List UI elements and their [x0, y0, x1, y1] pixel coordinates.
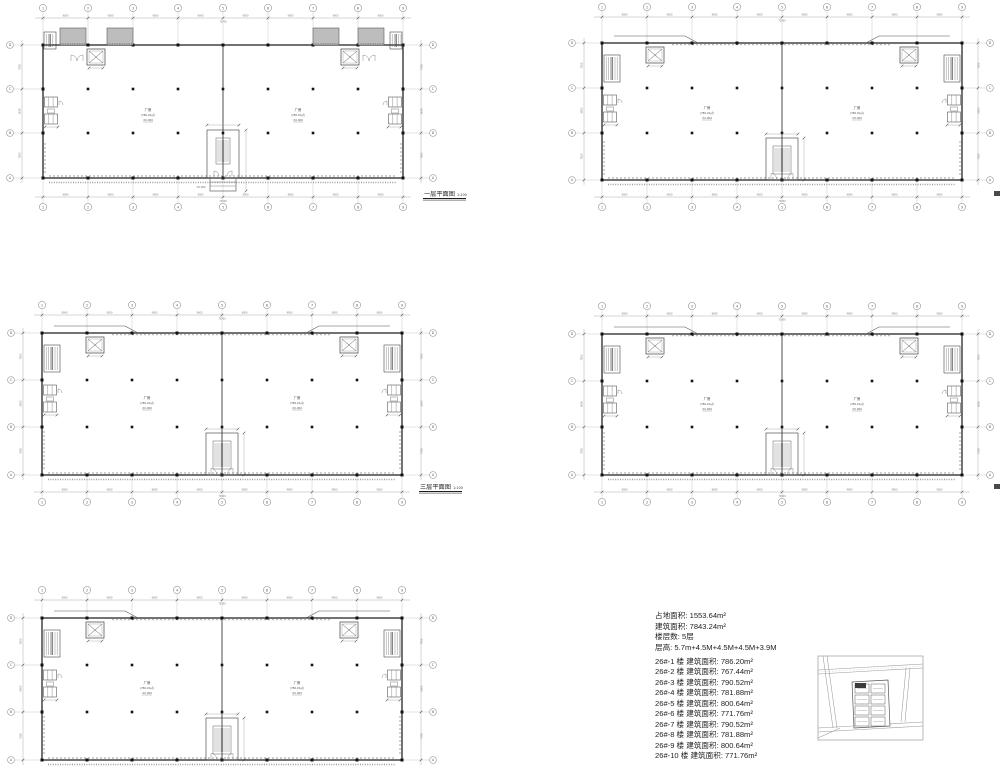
- svg-text:5: 5: [781, 5, 783, 9]
- svg-text:9000: 9000: [152, 597, 158, 600]
- svg-text:1:100: 1:100: [457, 193, 467, 197]
- svg-text:5: 5: [221, 588, 223, 592]
- svg-text:9: 9: [961, 205, 963, 209]
- svg-text:8: 8: [357, 6, 359, 10]
- svg-text:C: C: [989, 379, 991, 383]
- svg-text:72000: 72000: [778, 200, 786, 203]
- svg-text:9000: 9000: [332, 489, 338, 492]
- svg-text:9000: 9000: [847, 194, 853, 197]
- svg-text:9000: 9000: [243, 194, 249, 197]
- svg-text:9000: 9000: [802, 313, 808, 316]
- svg-text:7500: 7500: [978, 354, 981, 360]
- svg-text:B: B: [571, 131, 573, 135]
- svg-text:9000: 9000: [197, 597, 203, 600]
- svg-text:6000: 6000: [19, 400, 22, 406]
- svg-text:9000: 9000: [892, 194, 898, 197]
- svg-text:9000: 9000: [847, 313, 853, 316]
- svg-text:B: B: [432, 710, 434, 714]
- svg-text:9000: 9000: [287, 489, 293, 492]
- svg-text:C: C: [432, 378, 434, 382]
- svg-text:5: 5: [222, 6, 224, 10]
- svg-text:2: 2: [86, 588, 88, 592]
- svg-text:7: 7: [312, 6, 314, 10]
- plan-floor-2: 1900029000390004900059000690007900089000…: [569, 3, 1000, 210]
- svg-text:1: 1: [41, 303, 43, 307]
- svg-text:8: 8: [916, 205, 918, 209]
- svg-text:9000: 9000: [198, 194, 204, 197]
- svg-text:9000: 9000: [242, 312, 248, 315]
- svg-text:6: 6: [266, 588, 268, 592]
- svg-text:72000: 72000: [219, 21, 227, 24]
- svg-text:9000: 9000: [288, 194, 294, 197]
- svg-text:6: 6: [267, 6, 269, 10]
- svg-text:72000: 72000: [218, 318, 226, 321]
- svg-text:4: 4: [736, 500, 738, 504]
- svg-text:9000: 9000: [937, 14, 943, 17]
- svg-text:9000: 9000: [622, 194, 628, 197]
- svg-text:6: 6: [826, 5, 828, 9]
- svg-text:7500: 7500: [421, 638, 424, 644]
- svg-text:(786.20㎡): (786.20㎡): [700, 402, 714, 406]
- svg-text:8: 8: [357, 205, 359, 209]
- svg-text:厂房: 厂房: [854, 105, 861, 110]
- svg-text:9000: 9000: [847, 489, 853, 492]
- svg-text:C: C: [989, 86, 991, 90]
- svg-text:9000: 9000: [667, 194, 673, 197]
- svg-text:9000: 9000: [107, 312, 113, 315]
- stat-site-area: 占地面积: 1553.64m²: [655, 611, 777, 622]
- svg-text:5: 5: [781, 205, 783, 209]
- svg-text:(786.20㎡): (786.20㎡): [140, 401, 154, 405]
- svg-text:1: 1: [601, 500, 603, 504]
- svg-text:7500: 7500: [580, 153, 583, 159]
- svg-text:厂房: 厂房: [704, 396, 711, 401]
- svg-text:4: 4: [176, 303, 178, 307]
- svg-text:9000: 9000: [198, 15, 204, 18]
- svg-text:9000: 9000: [622, 14, 628, 17]
- svg-text:(786.20㎡): (786.20㎡): [290, 686, 304, 690]
- svg-text:72000: 72000: [778, 20, 786, 23]
- svg-text:8: 8: [356, 500, 358, 504]
- svg-text:9000: 9000: [107, 489, 113, 492]
- svg-text:4: 4: [177, 205, 179, 209]
- svg-text:(786.20㎡): (786.20㎡): [700, 111, 714, 115]
- svg-text:7: 7: [312, 205, 314, 209]
- svg-text:9000: 9000: [152, 312, 158, 315]
- svg-text:9000: 9000: [847, 14, 853, 17]
- svg-text:9000: 9000: [937, 194, 943, 197]
- svg-text:9000: 9000: [288, 15, 294, 18]
- svg-text:2: 2: [86, 500, 88, 504]
- svg-text:9: 9: [402, 205, 404, 209]
- svg-text:7500: 7500: [580, 448, 583, 454]
- svg-text:7: 7: [311, 303, 313, 307]
- svg-text:9000: 9000: [242, 597, 248, 600]
- plan-floor-3: 1900029000390004900059000690007900089000…: [8, 301, 463, 505]
- svg-text:一层平面图: 一层平面图: [424, 191, 455, 198]
- svg-text:9000: 9000: [332, 312, 338, 315]
- svg-text:7500: 7500: [580, 62, 583, 68]
- svg-text:6: 6: [826, 304, 828, 308]
- plan-floor-1: 1900029000390004900059000690007900089000…: [7, 4, 467, 210]
- svg-text:9000: 9000: [377, 489, 383, 492]
- svg-text:7500: 7500: [19, 353, 22, 359]
- svg-text:B: B: [432, 131, 434, 135]
- svg-text:6000: 6000: [580, 107, 583, 113]
- svg-text:7500: 7500: [19, 448, 22, 454]
- svg-text:2: 2: [646, 5, 648, 9]
- svg-text:1: 1: [41, 588, 43, 592]
- svg-text:6000: 6000: [19, 685, 22, 691]
- floor-plans-drawing: 1900029000390004900059000690007900089000…: [0, 0, 1000, 772]
- svg-text:1: 1: [601, 5, 603, 9]
- svg-text:B: B: [10, 710, 12, 714]
- svg-text:(786.20㎡): (786.20㎡): [291, 113, 305, 117]
- svg-text:6: 6: [826, 500, 828, 504]
- svg-text:B: B: [571, 425, 573, 429]
- svg-text:2: 2: [646, 500, 648, 504]
- svg-text:6: 6: [266, 500, 268, 504]
- svg-text:3: 3: [691, 304, 693, 308]
- svg-text:2: 2: [87, 205, 89, 209]
- plan-floor-5: 1900029000390004900059000690007900089000…: [8, 586, 437, 765]
- svg-text:9000: 9000: [243, 15, 249, 18]
- svg-text:4: 4: [177, 6, 179, 10]
- svg-text:9000: 9000: [153, 15, 159, 18]
- svg-text:9000: 9000: [153, 194, 159, 197]
- svg-text:7500: 7500: [18, 152, 21, 158]
- svg-text:(786.20㎡): (786.20㎡): [850, 402, 864, 406]
- svg-text:9: 9: [961, 500, 963, 504]
- svg-text:7: 7: [311, 500, 313, 504]
- svg-text:8: 8: [916, 500, 918, 504]
- svg-text:5: 5: [781, 304, 783, 308]
- svg-text:B: B: [989, 131, 991, 135]
- svg-text:3: 3: [131, 588, 133, 592]
- svg-text:72000: 72000: [778, 495, 786, 498]
- svg-text:±0.000: ±0.000: [196, 185, 206, 189]
- svg-text:6000: 6000: [421, 400, 424, 406]
- key-map: [818, 656, 923, 740]
- svg-text:(786.20㎡): (786.20㎡): [140, 686, 154, 690]
- unit-area-list: 26#-1 楼 建筑面积: 786.20m²26#-2 楼 建筑面积: 767.…: [655, 657, 777, 762]
- svg-text:1: 1: [41, 500, 43, 504]
- svg-text:1:100: 1:100: [453, 486, 463, 490]
- svg-text:厂房: 厂房: [295, 107, 302, 112]
- svg-text:9000: 9000: [802, 489, 808, 492]
- svg-text:3: 3: [691, 5, 693, 9]
- svg-text:±0.000: ±0.000: [142, 691, 152, 695]
- svg-text:9000: 9000: [622, 489, 628, 492]
- svg-text:三层平面图: 三层平面图: [420, 484, 451, 491]
- svg-text:7500: 7500: [421, 64, 424, 70]
- svg-text:7500: 7500: [421, 448, 424, 454]
- svg-text:6: 6: [267, 205, 269, 209]
- svg-text:7500: 7500: [978, 153, 981, 159]
- svg-text:5: 5: [221, 303, 223, 307]
- svg-text:9000: 9000: [197, 489, 203, 492]
- svg-text:7: 7: [871, 205, 873, 209]
- svg-text:9000: 9000: [892, 14, 898, 17]
- svg-text:±0.000: ±0.000: [142, 406, 152, 410]
- svg-text:1: 1: [601, 205, 603, 209]
- svg-text:9: 9: [402, 6, 404, 10]
- svg-text:±0.000: ±0.000: [143, 118, 153, 122]
- svg-text:9: 9: [401, 588, 403, 592]
- svg-text:9: 9: [961, 5, 963, 9]
- stat-floor-count: 楼层数: 5层: [655, 632, 777, 643]
- svg-text:厂房: 厂房: [145, 107, 152, 112]
- svg-text:±0.000: ±0.000: [292, 691, 302, 695]
- svg-text:2: 2: [646, 304, 648, 308]
- svg-text:9000: 9000: [332, 597, 338, 600]
- svg-text:9000: 9000: [378, 194, 384, 197]
- svg-text:72000: 72000: [219, 200, 227, 203]
- svg-text:±0.000: ±0.000: [702, 407, 712, 411]
- svg-text:5: 5: [222, 205, 224, 209]
- svg-text:厂房: 厂房: [294, 680, 301, 685]
- svg-text:9: 9: [961, 304, 963, 308]
- svg-text:9000: 9000: [892, 489, 898, 492]
- svg-text:厂房: 厂房: [704, 105, 711, 110]
- svg-text:7500: 7500: [421, 152, 424, 158]
- svg-text:B: B: [989, 425, 991, 429]
- svg-text:7: 7: [311, 588, 313, 592]
- svg-text:9000: 9000: [242, 489, 248, 492]
- svg-text:6: 6: [266, 303, 268, 307]
- svg-text:C: C: [10, 378, 12, 382]
- svg-text:B: B: [432, 425, 434, 429]
- svg-text:C: C: [9, 87, 11, 91]
- svg-text:C: C: [571, 86, 573, 90]
- svg-text:9000: 9000: [62, 597, 68, 600]
- unit-area-line: 26#-1 楼 建筑面积: 786.20m²: [655, 657, 777, 667]
- svg-text:9000: 9000: [802, 194, 808, 197]
- svg-text:7500: 7500: [421, 733, 424, 739]
- svg-text:5: 5: [221, 500, 223, 504]
- svg-text:±0.000: ±0.000: [293, 118, 303, 122]
- svg-text:3: 3: [132, 205, 134, 209]
- svg-text:B: B: [9, 131, 11, 135]
- svg-text:6000: 6000: [978, 401, 981, 407]
- svg-text:72000: 72000: [778, 319, 786, 322]
- svg-text:厂房: 厂房: [294, 395, 301, 400]
- svg-text:9000: 9000: [62, 312, 68, 315]
- svg-text:9000: 9000: [757, 313, 763, 316]
- svg-text:7: 7: [871, 500, 873, 504]
- svg-text:8: 8: [356, 303, 358, 307]
- svg-text:4: 4: [736, 5, 738, 9]
- svg-text:6: 6: [826, 205, 828, 209]
- svg-text:9000: 9000: [287, 597, 293, 600]
- svg-text:7: 7: [871, 304, 873, 308]
- svg-text:C: C: [432, 87, 434, 91]
- svg-text:4: 4: [176, 588, 178, 592]
- svg-text:厂房: 厂房: [854, 396, 861, 401]
- svg-text:3: 3: [131, 303, 133, 307]
- svg-text:3: 3: [691, 205, 693, 209]
- svg-text:C: C: [432, 663, 434, 667]
- svg-text:9: 9: [401, 303, 403, 307]
- svg-text:2: 2: [87, 6, 89, 10]
- stat-gross-area: 建筑面积: 7843.24m²: [655, 622, 777, 633]
- svg-text:9: 9: [401, 500, 403, 504]
- svg-text:5: 5: [781, 500, 783, 504]
- svg-text:±0.000: ±0.000: [702, 116, 712, 120]
- svg-text:7500: 7500: [978, 62, 981, 68]
- svg-text:8: 8: [916, 304, 918, 308]
- svg-text:72000: 72000: [218, 603, 226, 606]
- svg-text:9000: 9000: [622, 313, 628, 316]
- svg-text:9000: 9000: [757, 489, 763, 492]
- svg-text:1: 1: [42, 6, 44, 10]
- svg-text:6000: 6000: [580, 401, 583, 407]
- svg-text:4: 4: [736, 304, 738, 308]
- svg-text:9000: 9000: [937, 313, 943, 316]
- svg-text:6000: 6000: [421, 108, 424, 114]
- svg-text:9000: 9000: [108, 194, 114, 197]
- svg-text:9000: 9000: [108, 15, 114, 18]
- svg-text:9000: 9000: [757, 14, 763, 17]
- svg-text:9000: 9000: [937, 489, 943, 492]
- svg-text:9000: 9000: [667, 14, 673, 17]
- svg-text:72000: 72000: [218, 495, 226, 498]
- unit-area-line: 26#-3 楼 建筑面积: 790.52m²: [655, 678, 777, 688]
- svg-text:(786.20㎡): (786.20㎡): [850, 111, 864, 115]
- stat-floor-height: 层高: 5.7m+4.5M+4.5M+4.5M+3.9M: [655, 643, 777, 654]
- svg-text:6000: 6000: [18, 108, 21, 114]
- svg-text:3: 3: [132, 6, 134, 10]
- clipped-plan-title: [994, 191, 1000, 196]
- unit-area-line: 26#-5 楼 建筑面积: 800.64m²: [655, 699, 777, 709]
- svg-text:2: 2: [646, 205, 648, 209]
- svg-text:9000: 9000: [712, 14, 718, 17]
- svg-text:9000: 9000: [378, 15, 384, 18]
- drawing-sheet: 1900029000390004900059000690007900089000…: [0, 0, 1000, 772]
- svg-text:7500: 7500: [19, 638, 22, 644]
- svg-text:9000: 9000: [667, 489, 673, 492]
- svg-text:7500: 7500: [18, 64, 21, 70]
- svg-text:9000: 9000: [712, 194, 718, 197]
- svg-text:4: 4: [176, 500, 178, 504]
- unit-area-line: 26#-9 楼 建筑面积: 800.64m²: [655, 741, 777, 751]
- svg-text:7500: 7500: [421, 353, 424, 359]
- unit-area-line: 26#-4 楼 建筑面积: 781.88m²: [655, 688, 777, 698]
- svg-text:9000: 9000: [63, 194, 69, 197]
- svg-text:(786.20㎡): (786.20㎡): [290, 401, 304, 405]
- svg-text:9000: 9000: [197, 312, 203, 315]
- clipped-plan-title: [994, 484, 1000, 489]
- svg-text:9000: 9000: [63, 15, 69, 18]
- unit-area-line: 26#-7 楼 建筑面积: 790.52m²: [655, 720, 777, 730]
- svg-text:3: 3: [691, 500, 693, 504]
- svg-text:厂房: 厂房: [144, 395, 151, 400]
- svg-text:1: 1: [601, 304, 603, 308]
- svg-text:±0.000: ±0.000: [852, 116, 862, 120]
- svg-text:9000: 9000: [107, 597, 113, 600]
- svg-text:7500: 7500: [978, 448, 981, 454]
- svg-text:9000: 9000: [377, 597, 383, 600]
- svg-text:(786.20㎡): (786.20㎡): [141, 113, 155, 117]
- svg-text:6000: 6000: [421, 685, 424, 691]
- svg-text:9000: 9000: [892, 313, 898, 316]
- svg-text:9000: 9000: [377, 312, 383, 315]
- svg-text:7500: 7500: [580, 354, 583, 360]
- svg-text:±0.000: ±0.000: [852, 407, 862, 411]
- project-stats: 占地面积: 1553.64m² 建筑面积: 7843.24m² 楼层数: 5层 …: [655, 611, 777, 761]
- svg-text:9000: 9000: [667, 313, 673, 316]
- svg-text:9000: 9000: [712, 489, 718, 492]
- svg-text:8: 8: [356, 588, 358, 592]
- svg-text:C: C: [10, 663, 12, 667]
- svg-text:7500: 7500: [19, 733, 22, 739]
- svg-text:B: B: [10, 425, 12, 429]
- svg-text:±0.000: ±0.000: [292, 406, 302, 410]
- svg-text:1: 1: [42, 205, 44, 209]
- svg-text:9000: 9000: [287, 312, 293, 315]
- svg-text:2: 2: [86, 303, 88, 307]
- svg-text:9000: 9000: [333, 194, 339, 197]
- svg-text:3: 3: [131, 500, 133, 504]
- unit-area-line: 26#-10 楼 建筑面积: 771.76m²: [655, 751, 777, 761]
- svg-text:9000: 9000: [802, 14, 808, 17]
- unit-area-line: 26#-6 楼 建筑面积: 771.76m²: [655, 709, 777, 719]
- svg-text:4: 4: [736, 205, 738, 209]
- svg-text:7: 7: [871, 5, 873, 9]
- svg-text:9000: 9000: [333, 15, 339, 18]
- svg-text:6000: 6000: [978, 107, 981, 113]
- svg-text:C: C: [571, 379, 573, 383]
- plan-floor-4: 1900029000390004900059000690007900089000…: [569, 302, 1000, 505]
- svg-text:9000: 9000: [757, 194, 763, 197]
- key-map-highlighted-building: [855, 683, 866, 688]
- svg-text:厂房: 厂房: [144, 680, 151, 685]
- svg-text:9000: 9000: [152, 489, 158, 492]
- svg-text:9000: 9000: [62, 489, 68, 492]
- unit-area-line: 26#-2 楼 建筑面积: 767.44m²: [655, 667, 777, 677]
- svg-text:9000: 9000: [712, 313, 718, 316]
- svg-text:8: 8: [916, 5, 918, 9]
- unit-area-line: 26#-8 楼 建筑面积: 781.88m²: [655, 730, 777, 740]
